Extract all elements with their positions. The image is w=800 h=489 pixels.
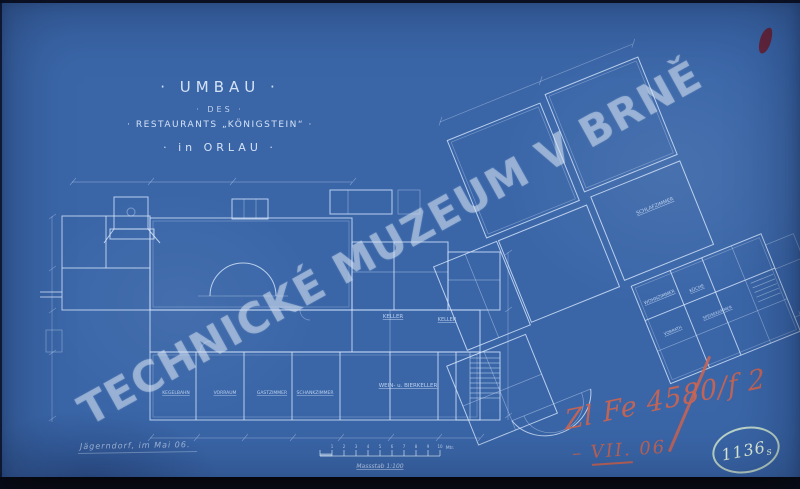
scale-label: Massstab 1:100 <box>356 463 403 470</box>
annex-room-labels: SCHLAFZIMMER WOHNZIMMER KÜCHE SPEISEKAMM… <box>611 191 733 339</box>
scale-tick: 1 <box>331 444 334 449</box>
scale-tick: 9 <box>427 444 430 449</box>
room-label: KELLER <box>438 317 457 323</box>
title-line-1: · UMBAU · <box>105 78 335 96</box>
photo-edge-top <box>0 0 800 3</box>
room-label: WOHNZIMMER <box>643 289 676 307</box>
scale-bar: 1 2 3 4 5 6 7 8 9 10 Mtr. Massstab 1:100 <box>320 444 454 470</box>
title-line-4: · in ORLAU · <box>105 141 335 154</box>
scale-tick: 10 <box>437 444 443 449</box>
red-date-dash: – <box>571 443 583 465</box>
title-line-3: · RESTAURANTS „KÖNIGSTEIN“ · <box>105 120 335 130</box>
scale-tick: 3 <box>355 444 358 449</box>
scale-tick: 5 <box>379 444 382 449</box>
photo-edge-bottom <box>0 477 800 489</box>
room-label: SCHANKZIMMER <box>297 390 334 396</box>
room-label: SCHLAFZIMMER <box>636 196 676 217</box>
room-label: KÜCHE <box>688 282 705 294</box>
room-label: VORRATH <box>663 325 683 337</box>
scale-tick: 2 <box>343 444 346 449</box>
scale-tick: 4 <box>367 444 370 449</box>
tower-plan <box>104 197 160 243</box>
title-block: · UMBAU · · DES · · RESTAURANTS „KÖNIGST… <box>105 78 335 154</box>
scale-tick-numbers: 1 2 3 4 5 6 7 8 9 10 Mtr. Massstab 1:100 <box>331 444 455 470</box>
blueprint-sheet: SCHLAFZIMMER WOHNZIMMER KÜCHE SPEISEKAMM… <box>0 0 800 489</box>
stamp-suffix: s <box>766 446 773 458</box>
scale-tick: 6 <box>391 444 394 449</box>
room-label: WEIN- u. BIERKELLER <box>379 383 438 389</box>
annex-room-cluster <box>631 234 800 384</box>
signature-note: Jägerndorf, im Mai 06. <box>78 440 197 454</box>
title-line-2: · DES · <box>105 105 335 114</box>
stamp-number: 1136 <box>720 437 768 464</box>
room-label: GASTZIMMER <box>257 390 287 396</box>
scale-unit: Mtr. <box>446 445 455 451</box>
photo-edge-left <box>0 0 2 489</box>
room-label: SPEISEKAMMER <box>702 304 733 320</box>
room-label: KELLER <box>383 314 404 320</box>
staircase <box>456 352 500 420</box>
room-label: VORRAUM <box>214 390 237 396</box>
scale-tick: 8 <box>415 444 418 449</box>
scale-tick: 7 <box>403 444 406 449</box>
red-date-roman: VII. <box>590 439 633 466</box>
red-date-year: 06 <box>639 437 667 460</box>
